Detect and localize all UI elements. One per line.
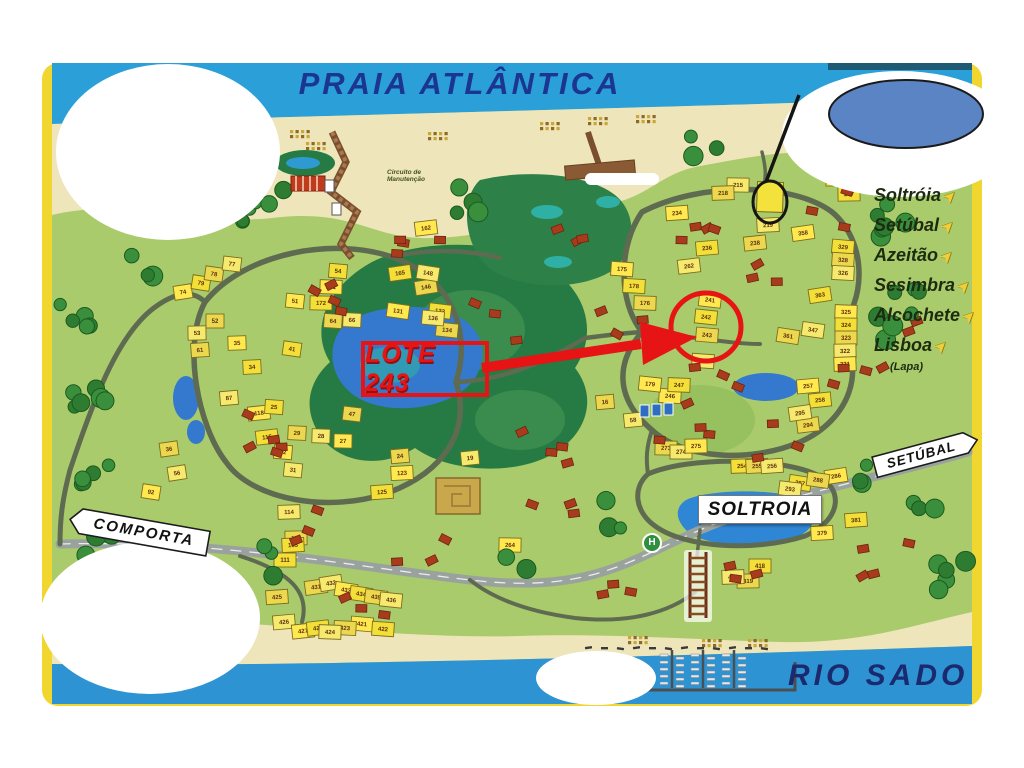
lot: 51 — [285, 293, 304, 309]
house-roof — [690, 222, 702, 231]
moored-boat — [738, 671, 746, 674]
beach-umbrella — [439, 132, 442, 135]
tree — [912, 501, 927, 516]
beach-umbrella — [759, 644, 762, 647]
svg-text:31: 31 — [289, 468, 297, 475]
svg-text:125: 125 — [377, 490, 388, 497]
svg-text:34: 34 — [249, 365, 257, 371]
svg-text:236: 236 — [702, 246, 713, 253]
tree — [257, 539, 272, 554]
beach-umbrella — [605, 117, 608, 120]
destination-item: Sesimbra➤ — [874, 271, 975, 301]
beach-umbrella — [546, 122, 549, 125]
moored-boat — [707, 664, 715, 667]
house-roof — [556, 442, 568, 451]
lot: 176 — [634, 296, 656, 311]
beach-umbrella — [628, 636, 631, 639]
beach-umbrella — [428, 137, 431, 140]
lot: 218 — [712, 186, 734, 201]
moored-boat — [660, 682, 668, 685]
svg-text:242: 242 — [701, 314, 712, 321]
svg-text:52: 52 — [212, 319, 219, 325]
svg-text:246: 246 — [665, 394, 676, 401]
plaza-square — [436, 478, 480, 514]
tree — [925, 499, 944, 518]
beach-umbrella — [594, 117, 597, 120]
photo-edge-sliver — [828, 63, 972, 70]
moored-boat — [707, 685, 715, 688]
svg-text:234: 234 — [672, 211, 683, 218]
moored-boat — [691, 682, 699, 685]
svg-text:381: 381 — [851, 518, 862, 525]
lot: 322 — [834, 344, 856, 358]
svg-text:243: 243 — [702, 333, 713, 340]
beach-umbrella — [296, 135, 299, 138]
svg-text:176: 176 — [640, 301, 651, 307]
lot: 234 — [666, 205, 689, 221]
house-roof — [391, 558, 402, 566]
beach-umbrella — [639, 636, 642, 639]
beach-umbrella — [445, 132, 448, 135]
lot: 172 — [310, 296, 332, 310]
lot: 178 — [623, 278, 646, 293]
svg-text:123: 123 — [397, 471, 408, 478]
beach-umbrella — [645, 636, 648, 639]
svg-text:118: 118 — [254, 410, 265, 417]
circuito-label: Circuito de Manutenção — [387, 169, 455, 183]
destination-item: Alcochete➤ — [874, 301, 975, 331]
house-roof — [752, 453, 764, 462]
beach-umbrella — [551, 127, 554, 130]
house-roof — [356, 604, 367, 612]
lot: 436 — [379, 592, 402, 608]
svg-text:329: 329 — [838, 245, 849, 252]
moored-boat — [660, 661, 668, 664]
boat — [649, 647, 656, 649]
house-roof — [654, 436, 666, 444]
beach-umbrella — [702, 639, 705, 642]
beach-umbrella — [765, 644, 768, 647]
lot: 165 — [388, 265, 412, 282]
lot: 19 — [460, 450, 479, 466]
house-roof — [510, 336, 522, 345]
beach-umbrella — [748, 639, 751, 642]
destination-item: Soltróia➤ — [874, 181, 975, 211]
house-roof — [395, 236, 406, 244]
beach-umbrella — [323, 142, 326, 145]
svg-text:66: 66 — [348, 318, 356, 324]
lot: 125 — [371, 484, 394, 500]
lot-callout: LOTE 243 — [361, 341, 489, 397]
house-roof — [806, 206, 818, 215]
beach-umbrella — [428, 132, 431, 135]
moored-boat — [707, 678, 715, 681]
moored-boat — [660, 654, 668, 657]
moored-boat — [691, 654, 699, 657]
beach-umbrella — [290, 130, 293, 133]
svg-text:325: 325 — [841, 310, 852, 316]
svg-text:328: 328 — [838, 258, 849, 265]
svg-text:275: 275 — [691, 444, 702, 450]
moored-boat — [691, 668, 699, 671]
lot: 74 — [173, 284, 193, 301]
lot: 123 — [391, 465, 414, 480]
lot: 16 — [595, 394, 614, 410]
lot: 295 — [788, 405, 812, 422]
svg-text:426: 426 — [279, 620, 290, 627]
beach-umbrella — [708, 639, 711, 642]
pool — [596, 196, 620, 208]
svg-text:28: 28 — [318, 434, 326, 440]
lot: 25 — [265, 399, 284, 414]
house-roof — [576, 234, 588, 243]
svg-text:54: 54 — [334, 269, 342, 276]
lot: 288 — [806, 472, 830, 489]
beach-umbrella — [765, 639, 768, 642]
tree — [468, 202, 488, 222]
beach-umbrella — [323, 147, 326, 150]
lot: 36 — [159, 441, 179, 457]
lot: 54 — [328, 263, 347, 279]
beach-umbrella — [636, 120, 639, 123]
tree — [264, 566, 283, 585]
moored-boat — [722, 682, 730, 685]
boat — [745, 647, 752, 649]
tree — [96, 392, 114, 410]
svg-text:175: 175 — [617, 267, 628, 274]
beach-umbrella — [540, 122, 543, 125]
house-roof — [625, 587, 637, 596]
lot: 238 — [743, 235, 766, 251]
beach-umbrella — [317, 147, 320, 150]
beach-umbrella — [647, 115, 650, 118]
house-roof — [857, 544, 869, 553]
svg-text:114: 114 — [284, 510, 295, 516]
beach-umbrella — [634, 636, 637, 639]
beach-umbrella — [754, 639, 757, 642]
destinations-list: Soltróia➤ Setúbal➤ Azeitão➤ Sesimbra➤ Al… — [874, 181, 975, 373]
moored-boat — [676, 671, 684, 674]
beach-umbrella — [634, 641, 637, 644]
svg-text:87: 87 — [225, 396, 233, 403]
svg-text:257: 257 — [803, 384, 814, 391]
moored-boat — [722, 654, 730, 657]
beach-umbrella — [434, 137, 437, 140]
beach-umbrella — [434, 132, 437, 135]
moored-boat — [676, 678, 684, 681]
svg-text:264: 264 — [505, 543, 516, 549]
beach-umbrella — [642, 120, 645, 123]
tree — [275, 181, 292, 198]
lot: 47 — [342, 406, 362, 422]
beach-umbrella — [605, 122, 608, 125]
house-roof — [546, 448, 558, 456]
lot: 24 — [390, 448, 409, 464]
moored-boat — [707, 657, 715, 660]
beach-umbrella — [599, 122, 602, 125]
lot: 242 — [694, 309, 717, 325]
moored-boat — [722, 661, 730, 664]
moored-boat — [691, 661, 699, 664]
svg-text:422: 422 — [378, 627, 389, 634]
svg-text:111: 111 — [280, 558, 290, 564]
moored-boat — [691, 675, 699, 678]
beach-umbrella — [317, 142, 320, 145]
beach-umbrella — [546, 127, 549, 130]
beach-umbrella — [702, 644, 705, 647]
house-roof — [568, 509, 580, 518]
tree — [498, 549, 515, 566]
house-roof — [695, 424, 706, 432]
pool — [286, 157, 320, 169]
lot: 29 — [288, 426, 307, 441]
moored-boat — [738, 685, 746, 688]
house-roof — [689, 363, 701, 372]
beach-umbrella — [653, 120, 656, 123]
house-roof — [730, 574, 742, 583]
svg-text:218: 218 — [718, 191, 729, 197]
beach-umbrella — [307, 130, 310, 133]
lot: 28 — [312, 429, 330, 444]
beach-umbrella — [557, 122, 560, 125]
lot: 424 — [319, 625, 341, 640]
tree — [938, 562, 954, 578]
moored-boat — [707, 671, 715, 674]
lot: 78 — [204, 266, 224, 282]
beach-umbrella — [306, 142, 309, 145]
lot: 27 — [334, 434, 352, 448]
tree — [929, 580, 947, 598]
park-patch — [475, 390, 565, 450]
beach-umbrella — [645, 641, 648, 644]
beach-umbrella — [557, 127, 560, 130]
svg-text:421: 421 — [357, 622, 368, 629]
tree — [684, 130, 697, 143]
lot: 425 — [266, 589, 289, 605]
lot: 275 — [685, 439, 707, 453]
destination-subtext: (Lapa) — [890, 361, 975, 373]
svg-text:27: 27 — [340, 439, 347, 445]
tree — [141, 268, 154, 281]
beach-umbrella — [628, 641, 631, 644]
lot: 323 — [835, 331, 857, 345]
beach-umbrella — [642, 115, 645, 118]
svg-text:215: 215 — [733, 183, 744, 189]
beach-umbrella — [754, 644, 757, 647]
beach-umbrella — [719, 644, 722, 647]
beach-umbrella — [312, 142, 315, 145]
tree — [54, 298, 66, 310]
svg-text:51: 51 — [291, 299, 299, 306]
svg-text:238: 238 — [750, 240, 761, 247]
beach-umbrella — [708, 644, 711, 647]
tree — [102, 459, 115, 472]
boat — [697, 647, 704, 649]
svg-text:436: 436 — [386, 597, 397, 604]
svg-text:61: 61 — [197, 348, 205, 354]
svg-text:258: 258 — [815, 397, 826, 404]
lot: 326 — [832, 265, 855, 280]
moored-boat — [676, 664, 684, 667]
helipad-label: H — [647, 537, 657, 549]
house-roof — [771, 278, 782, 286]
beach-umbrella — [713, 639, 716, 642]
beach-ladder-pier — [684, 550, 712, 622]
destination-item: Azeitão➤ — [874, 241, 975, 271]
svg-text:58: 58 — [629, 418, 637, 425]
tree — [852, 473, 868, 489]
moored-boat — [660, 668, 668, 671]
beach-umbrella — [647, 120, 650, 123]
house-roof — [268, 435, 280, 444]
tree — [75, 471, 91, 487]
lot: 363 — [808, 286, 832, 303]
lot: 87 — [219, 390, 238, 406]
svg-text:19: 19 — [466, 456, 474, 463]
tree — [956, 551, 976, 571]
beach-umbrella — [290, 135, 293, 138]
beach-umbrella — [599, 117, 602, 120]
moored-boat — [738, 657, 746, 660]
tree — [709, 141, 724, 156]
beach-umbrella — [594, 122, 597, 125]
svg-text:322: 322 — [840, 349, 851, 355]
lot: 236 — [695, 240, 718, 256]
destination-item: Setúbal➤ — [874, 211, 975, 241]
beach-umbrella — [588, 122, 591, 125]
lot: 258 — [808, 392, 831, 408]
house-roof — [597, 590, 609, 599]
svg-text:323: 323 — [841, 336, 852, 342]
map-canvas: 7479787751546466171172525335346187118115… — [0, 0, 1024, 768]
house-roof — [767, 420, 778, 428]
lot: 179 — [638, 376, 661, 392]
lot: 262 — [677, 258, 701, 275]
lot: 381 — [845, 512, 868, 528]
tree — [79, 319, 94, 334]
svg-text:424: 424 — [325, 630, 336, 636]
beach-umbrella — [713, 644, 716, 647]
house-roof — [335, 306, 347, 316]
tree — [124, 248, 139, 263]
beach-umbrella — [307, 135, 310, 138]
svg-text:172: 172 — [316, 301, 327, 307]
beach-umbrella — [636, 115, 639, 118]
svg-text:379: 379 — [817, 531, 828, 538]
house-roof — [489, 309, 501, 318]
boat — [601, 647, 608, 649]
beach-umbrella — [445, 137, 448, 140]
moored-boat — [722, 675, 730, 678]
svg-text:425: 425 — [272, 595, 283, 602]
lot: 347 — [801, 322, 825, 339]
beach-umbrella — [759, 639, 762, 642]
svg-text:179: 179 — [645, 381, 656, 388]
house-roof — [676, 236, 687, 244]
lot: 361 — [776, 327, 800, 344]
lot: 247 — [668, 378, 690, 393]
lot: 114 — [278, 505, 300, 520]
lot: 41 — [282, 341, 302, 357]
lot: 131 — [386, 303, 410, 320]
house-roof — [434, 236, 445, 244]
lot: 162 — [414, 220, 438, 237]
beach-umbrella — [301, 135, 304, 138]
svg-text:256: 256 — [767, 464, 778, 471]
moored-boat — [738, 678, 746, 681]
beach-umbrella — [653, 115, 656, 118]
house-roof — [838, 364, 849, 372]
moored-boat — [676, 685, 684, 688]
tree — [684, 146, 703, 165]
lot: 325 — [835, 305, 857, 320]
svg-text:134: 134 — [442, 327, 453, 334]
svg-text:35: 35 — [234, 341, 242, 347]
svg-text:178: 178 — [629, 284, 640, 291]
lot: 136 — [421, 310, 444, 326]
tree — [860, 459, 872, 471]
pool — [531, 205, 563, 219]
lot: 243 — [695, 327, 718, 343]
svg-text:16: 16 — [601, 400, 609, 407]
lot: 64 — [324, 313, 343, 328]
svg-text:29: 29 — [293, 431, 301, 437]
svg-text:25: 25 — [270, 405, 278, 411]
moored-boat — [722, 668, 730, 671]
lot: 31 — [283, 462, 302, 478]
park-north — [467, 174, 631, 285]
west-pond-small — [187, 420, 205, 444]
beach-umbrella — [296, 130, 299, 133]
moored-boat — [660, 675, 668, 678]
lot: 148 — [416, 264, 440, 281]
lot: 52 — [206, 314, 224, 328]
house-roof — [607, 580, 619, 588]
svg-text:136: 136 — [428, 316, 439, 323]
beach-umbrella — [312, 147, 315, 150]
redaction-oval — [829, 80, 983, 148]
svg-text:326: 326 — [838, 271, 849, 278]
beach-umbrella — [306, 147, 309, 150]
lot: 34 — [243, 360, 262, 375]
beach-umbrella — [719, 639, 722, 642]
beach-umbrella — [639, 641, 642, 644]
map-title: PRAIA ATLÂNTICA — [235, 66, 685, 102]
tree — [450, 206, 463, 219]
lot: 56 — [167, 465, 187, 482]
tree — [597, 492, 615, 510]
beach-umbrella — [301, 130, 304, 133]
soltroia-sign: SOLTROIA — [698, 495, 822, 524]
lot: 53 — [188, 326, 206, 340]
moored-boat — [738, 664, 746, 667]
beach-umbrella — [748, 644, 751, 647]
house-roof — [391, 249, 402, 257]
beach-umbrella — [551, 122, 554, 125]
beach-umbrella — [540, 127, 543, 130]
tree — [72, 394, 90, 412]
svg-text:247: 247 — [674, 383, 685, 389]
lot: 175 — [611, 261, 634, 277]
lot: 422 — [372, 621, 395, 637]
tree — [66, 314, 79, 327]
svg-text:324: 324 — [841, 323, 852, 329]
svg-text:64: 64 — [329, 319, 337, 325]
house-roof — [378, 610, 390, 619]
lot: 77 — [222, 256, 242, 272]
river-label: RIO SADO — [788, 659, 968, 693]
lot: 379 — [811, 525, 834, 540]
